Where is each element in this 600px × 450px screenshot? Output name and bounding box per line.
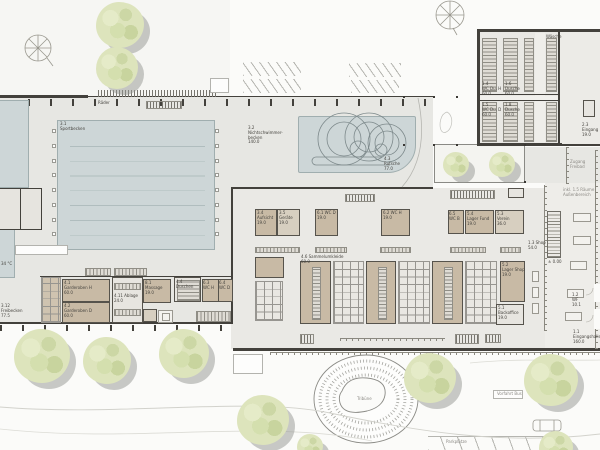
bench-icon bbox=[312, 267, 321, 320]
bike-rack-icon bbox=[98, 90, 216, 97]
start-block bbox=[52, 203, 56, 207]
deck-bench bbox=[15, 245, 68, 255]
tree-icon bbox=[14, 329, 70, 383]
storage-box bbox=[508, 188, 524, 198]
label-parkplaetze: Parkplätze bbox=[446, 440, 467, 445]
bench-icon bbox=[378, 267, 387, 320]
locker-strip bbox=[196, 311, 231, 322]
label-waesche: Wäsche bbox=[546, 35, 561, 40]
label-lager-shop: 5.2 Lager Shop 19.0 bbox=[502, 263, 525, 277]
tree-icon bbox=[159, 329, 209, 378]
label-raeder: Räder bbox=[98, 101, 110, 106]
wc-cells bbox=[41, 277, 61, 323]
start-block bbox=[52, 218, 56, 222]
locker-strip bbox=[485, 334, 501, 343]
locker-strip bbox=[114, 268, 147, 276]
lane-lines bbox=[70, 132, 205, 240]
label-wc-b: 6.5 WC B bbox=[449, 212, 460, 222]
tree-icon bbox=[524, 354, 578, 406]
locker-bank bbox=[524, 102, 534, 142]
start-block bbox=[215, 159, 219, 163]
seating-group bbox=[570, 261, 587, 270]
locker-block bbox=[255, 281, 283, 321]
locker-bank bbox=[546, 102, 557, 142]
parking-row-2 bbox=[243, 79, 301, 93]
sports-pool bbox=[57, 120, 215, 250]
label-sportbecken: 3.1 Sportbecken bbox=[60, 122, 85, 132]
column bbox=[524, 144, 526, 146]
hall-west-wall bbox=[231, 187, 233, 324]
left-pool bbox=[0, 100, 29, 188]
bench bbox=[532, 303, 539, 314]
label-wc-d2: 6.4 WC D bbox=[219, 281, 233, 291]
room-umkleide-2 bbox=[366, 261, 396, 324]
label-garderoben-h: 4.1 Garderoben H 60.0 bbox=[64, 281, 92, 295]
start-block bbox=[215, 173, 219, 177]
start-block bbox=[215, 203, 219, 207]
label-wc-h1: 6.2 WC H 19.0 bbox=[383, 211, 402, 221]
label-backoffice: 5.1 Backoffice 19.0 bbox=[498, 306, 519, 320]
elevator-cab bbox=[162, 313, 170, 321]
label-wc-du-d: 1.5 WC Du. D 60.0 bbox=[482, 103, 501, 117]
column bbox=[403, 96, 405, 98]
start-block bbox=[215, 188, 219, 192]
label-wc-h2: 6.3 WC H bbox=[203, 281, 217, 291]
label-vorfahrt: Vorfahrt Bus bbox=[497, 392, 522, 397]
bike-rack-2-icon bbox=[146, 101, 182, 109]
locker-bank bbox=[524, 38, 534, 92]
locker-bank bbox=[546, 38, 557, 92]
column bbox=[433, 144, 435, 146]
label-ablage: 4.11 Ablage 24.0 bbox=[114, 294, 138, 304]
parking-row-3 bbox=[349, 63, 401, 77]
label-eingangshalle: 1.1 Eingangshalle 160.0 bbox=[573, 330, 600, 344]
locker-strip bbox=[300, 334, 314, 344]
start-block bbox=[52, 188, 56, 192]
north-wall-thick bbox=[0, 95, 88, 98]
room-umkleide-1 bbox=[300, 261, 331, 324]
tree-icon bbox=[539, 431, 573, 450]
cubicle-aisle bbox=[465, 261, 497, 324]
tree-symbol-icon bbox=[436, 1, 464, 35]
label-garderoben-d: 4.2 Garderoben D 60.0 bbox=[64, 304, 92, 318]
west-annex bbox=[0, 188, 42, 230]
bench-row bbox=[345, 194, 375, 202]
tree-icon bbox=[96, 47, 138, 89]
locker-strip bbox=[114, 283, 141, 290]
car-icon bbox=[533, 420, 561, 431]
label-level: ± 0.00 bbox=[548, 260, 562, 265]
bench-row bbox=[450, 190, 495, 199]
locker-strip bbox=[380, 247, 411, 253]
locker-strip bbox=[255, 247, 300, 253]
footpath bbox=[0, 406, 600, 438]
elevator bbox=[158, 310, 173, 323]
label-verein: 5.3 Verein 36.0 bbox=[497, 212, 510, 226]
room-umkleide-3 bbox=[432, 261, 463, 324]
tree-icon bbox=[404, 353, 456, 403]
label-wc-d1: 6.1 WC D 19.0 bbox=[317, 211, 336, 221]
locker-shaft bbox=[535, 33, 545, 143]
stair bbox=[547, 211, 561, 258]
seating-group bbox=[573, 213, 591, 222]
bench-line bbox=[340, 338, 445, 341]
start-block bbox=[215, 232, 219, 236]
locker-bldg-south-wall bbox=[477, 143, 562, 146]
start-block bbox=[215, 129, 219, 133]
room-dusche-w bbox=[255, 257, 284, 278]
entrance-door bbox=[594, 309, 600, 329]
locker-strip bbox=[85, 268, 111, 276]
label-dusche-h: 1.6 Dusche 60.0 bbox=[505, 82, 520, 96]
locker-bldg-west-wall bbox=[477, 29, 480, 146]
tree-icon bbox=[443, 152, 469, 177]
start-block bbox=[215, 218, 219, 222]
cubicle-aisle bbox=[333, 261, 364, 324]
start-block bbox=[52, 129, 56, 133]
cubicle-aisle bbox=[398, 261, 430, 324]
label-umkleide1: 4.6 Sammelumkleide 60.0 bbox=[301, 255, 361, 265]
small-room-east bbox=[583, 100, 595, 117]
tree-icon bbox=[297, 434, 323, 450]
locker-strip bbox=[450, 247, 486, 253]
parking-row-1 bbox=[243, 62, 301, 76]
bench-icon bbox=[444, 267, 453, 320]
corridor-wall-s bbox=[480, 100, 558, 101]
label-freibecken: 3.12 Freibecken 77.5 bbox=[1, 304, 23, 318]
tree-icon bbox=[83, 337, 131, 384]
start-block bbox=[52, 232, 56, 236]
locker-strip bbox=[455, 334, 479, 344]
hall-north-wall bbox=[233, 187, 433, 189]
locker-strip bbox=[500, 247, 521, 253]
foyer-glass-wall bbox=[544, 185, 547, 331]
start-block bbox=[52, 173, 56, 177]
parking-row-4 bbox=[351, 80, 399, 93]
start-block bbox=[215, 144, 219, 148]
hall-south-wall bbox=[233, 348, 600, 351]
entrance-door bbox=[594, 284, 600, 302]
locker-strip bbox=[114, 309, 141, 316]
label-wc-du-h: 1.4 WC Du. H 60.0 bbox=[482, 82, 501, 96]
shrub-outline-icon bbox=[440, 112, 452, 133]
bench bbox=[532, 287, 539, 298]
column bbox=[433, 96, 435, 98]
annex-divider bbox=[20, 189, 21, 229]
site-fence bbox=[566, 147, 569, 184]
label-dusche-d: 1.8 Dusche 60.0 bbox=[505, 103, 520, 117]
seating-group bbox=[573, 236, 591, 245]
label-aufsicht: 3.4 Aufsicht 19.0 bbox=[257, 211, 273, 225]
label-geraete: 3.5 Geräte 19.0 bbox=[279, 211, 293, 225]
label-temp: 34 °C bbox=[1, 262, 12, 267]
site-plan: Räder 3.1 Sportbecken 3.2 Nichtschwimmer… bbox=[0, 0, 600, 450]
column bbox=[456, 96, 458, 98]
tree-icon bbox=[96, 2, 144, 48]
column bbox=[456, 144, 458, 146]
label-eingang-freibad: 2.3 Eingang 19.0 bbox=[582, 123, 598, 137]
bench bbox=[532, 271, 539, 282]
label-shop: 1.3 Shop 54.0 bbox=[528, 241, 546, 251]
lightwell bbox=[233, 354, 263, 374]
start-block bbox=[52, 144, 56, 148]
locker-strip bbox=[315, 247, 347, 253]
label-duschen: 4.4 Duschen bbox=[176, 280, 193, 290]
column-row-north bbox=[28, 99, 433, 106]
label-nichtschwimmer: 3.2 Nichtschwimmer- becken 140.0 bbox=[248, 126, 283, 145]
label-raume-aussen: inkl. 1.5 Räume Außenbereich bbox=[563, 188, 594, 198]
locker-bldg-south-wall-e bbox=[562, 144, 600, 146]
room-wc-small bbox=[143, 309, 157, 322]
kids-pool bbox=[0, 228, 15, 278]
start-block bbox=[52, 159, 56, 163]
label-massage: 8.1 Massage 19.0 bbox=[145, 281, 163, 295]
label-tribune: Tribüne bbox=[357, 397, 372, 402]
locker-bldg-north-wall bbox=[477, 29, 600, 32]
locker-bldg-inner-wall bbox=[558, 32, 560, 143]
column bbox=[403, 144, 405, 146]
tree-icon bbox=[489, 152, 515, 177]
planter bbox=[210, 78, 229, 93]
tree-icon bbox=[237, 395, 289, 445]
label-lager-fund: 5.4 Lager Fund 19.0 bbox=[467, 212, 489, 226]
seating-group bbox=[565, 312, 582, 321]
column bbox=[524, 181, 526, 183]
label-zugang-freibad: Zugang Freibad bbox=[570, 160, 598, 170]
label-rutsche: 4.3 Rutsche 77.0 bbox=[384, 157, 400, 171]
label-windfang: 1.2 WF 10.1 bbox=[572, 293, 581, 307]
